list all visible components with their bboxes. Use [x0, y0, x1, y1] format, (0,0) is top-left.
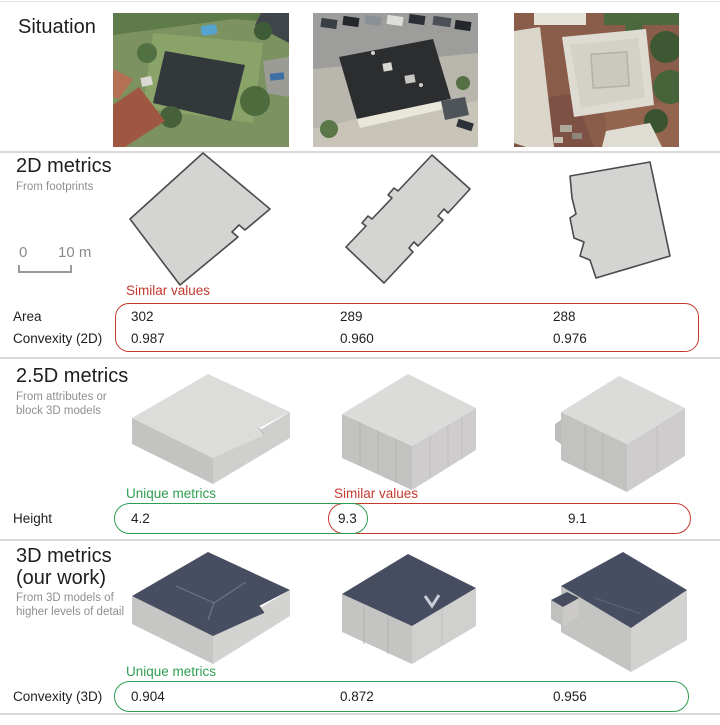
- block-model-building-3: [545, 366, 695, 494]
- highlight-box-similar-2d: [115, 303, 699, 352]
- section-title-3d-line2: (our work): [16, 567, 106, 590]
- convexity3d-value-2: 0.872: [340, 689, 374, 704]
- annotation-unique-metrics-25d: Unique metrics: [126, 486, 216, 501]
- lod-model-building-2: [330, 548, 485, 666]
- block-model-building-2: [330, 366, 485, 492]
- height-value-1: 4.2: [131, 511, 150, 526]
- height-value-2: 9.3: [338, 511, 357, 526]
- top-border: [0, 1, 720, 2]
- aerial-photo-detached-house: [113, 13, 289, 147]
- section-subtitle-25d-line2: block 3D models: [16, 405, 101, 417]
- scalebar-bracket: [18, 265, 72, 273]
- convexity2d-value-1: 0.987: [131, 331, 165, 346]
- convexity2d-value-3: 0.976: [553, 331, 587, 346]
- section-title-2d: 2D metrics: [16, 155, 112, 178]
- convexity2d-value-2: 0.960: [340, 331, 374, 346]
- section-subtitle-25d-line1: From attributes or: [16, 391, 107, 403]
- height-value-3: 9.1: [568, 511, 587, 526]
- scalebar-ten-label: 10 m: [58, 244, 91, 261]
- bottom-border: [0, 713, 720, 715]
- lod-model-building-3: [545, 546, 695, 672]
- figure-root: Situation: [0, 0, 720, 725]
- area-value-2: 289: [340, 309, 363, 324]
- row-label-convexity-2d: Convexity (2D): [13, 331, 102, 346]
- block-model-building-1: [118, 366, 298, 490]
- footprint-building-2: [332, 147, 482, 289]
- annotation-unique-metrics-3d: Unique metrics: [126, 664, 216, 679]
- aerial-photo-office-building: [313, 13, 478, 147]
- area-value-1: 302: [131, 309, 154, 324]
- section-title-25d: 2.5D metrics: [16, 365, 128, 388]
- highlight-box-unique-height: [114, 503, 368, 534]
- aerial-photo-flat-roof-complex: [514, 13, 679, 147]
- lod-model-building-1: [118, 546, 298, 668]
- row-label-area: Area: [13, 309, 42, 324]
- footprint-building-1: [118, 145, 278, 293]
- section-subtitle-2d: From footprints: [16, 181, 93, 193]
- highlight-box-unique-convexity3d: [114, 681, 689, 712]
- scalebar-zero-label: 0: [19, 244, 27, 261]
- row-label-convexity-3d: Convexity (3D): [13, 689, 102, 704]
- divider-2d-25d: [0, 357, 720, 359]
- area-value-3: 288: [553, 309, 576, 324]
- highlight-box-similar-height: [328, 503, 691, 534]
- divider-25d-3d: [0, 539, 720, 541]
- row-label-height: Height: [13, 511, 52, 526]
- section-title-3d-line1: 3D metrics: [16, 545, 112, 568]
- convexity3d-value-3: 0.956: [553, 689, 587, 704]
- section-subtitle-3d-line2: higher levels of detail: [16, 606, 124, 618]
- annotation-similar-values-2d: Similar values: [126, 283, 210, 298]
- footprint-building-3: [548, 156, 680, 286]
- section-title-situation: Situation: [18, 16, 96, 39]
- convexity3d-value-1: 0.904: [131, 689, 165, 704]
- annotation-similar-values-25d: Similar values: [334, 486, 418, 501]
- section-subtitle-3d-line1: From 3D models of: [16, 592, 114, 604]
